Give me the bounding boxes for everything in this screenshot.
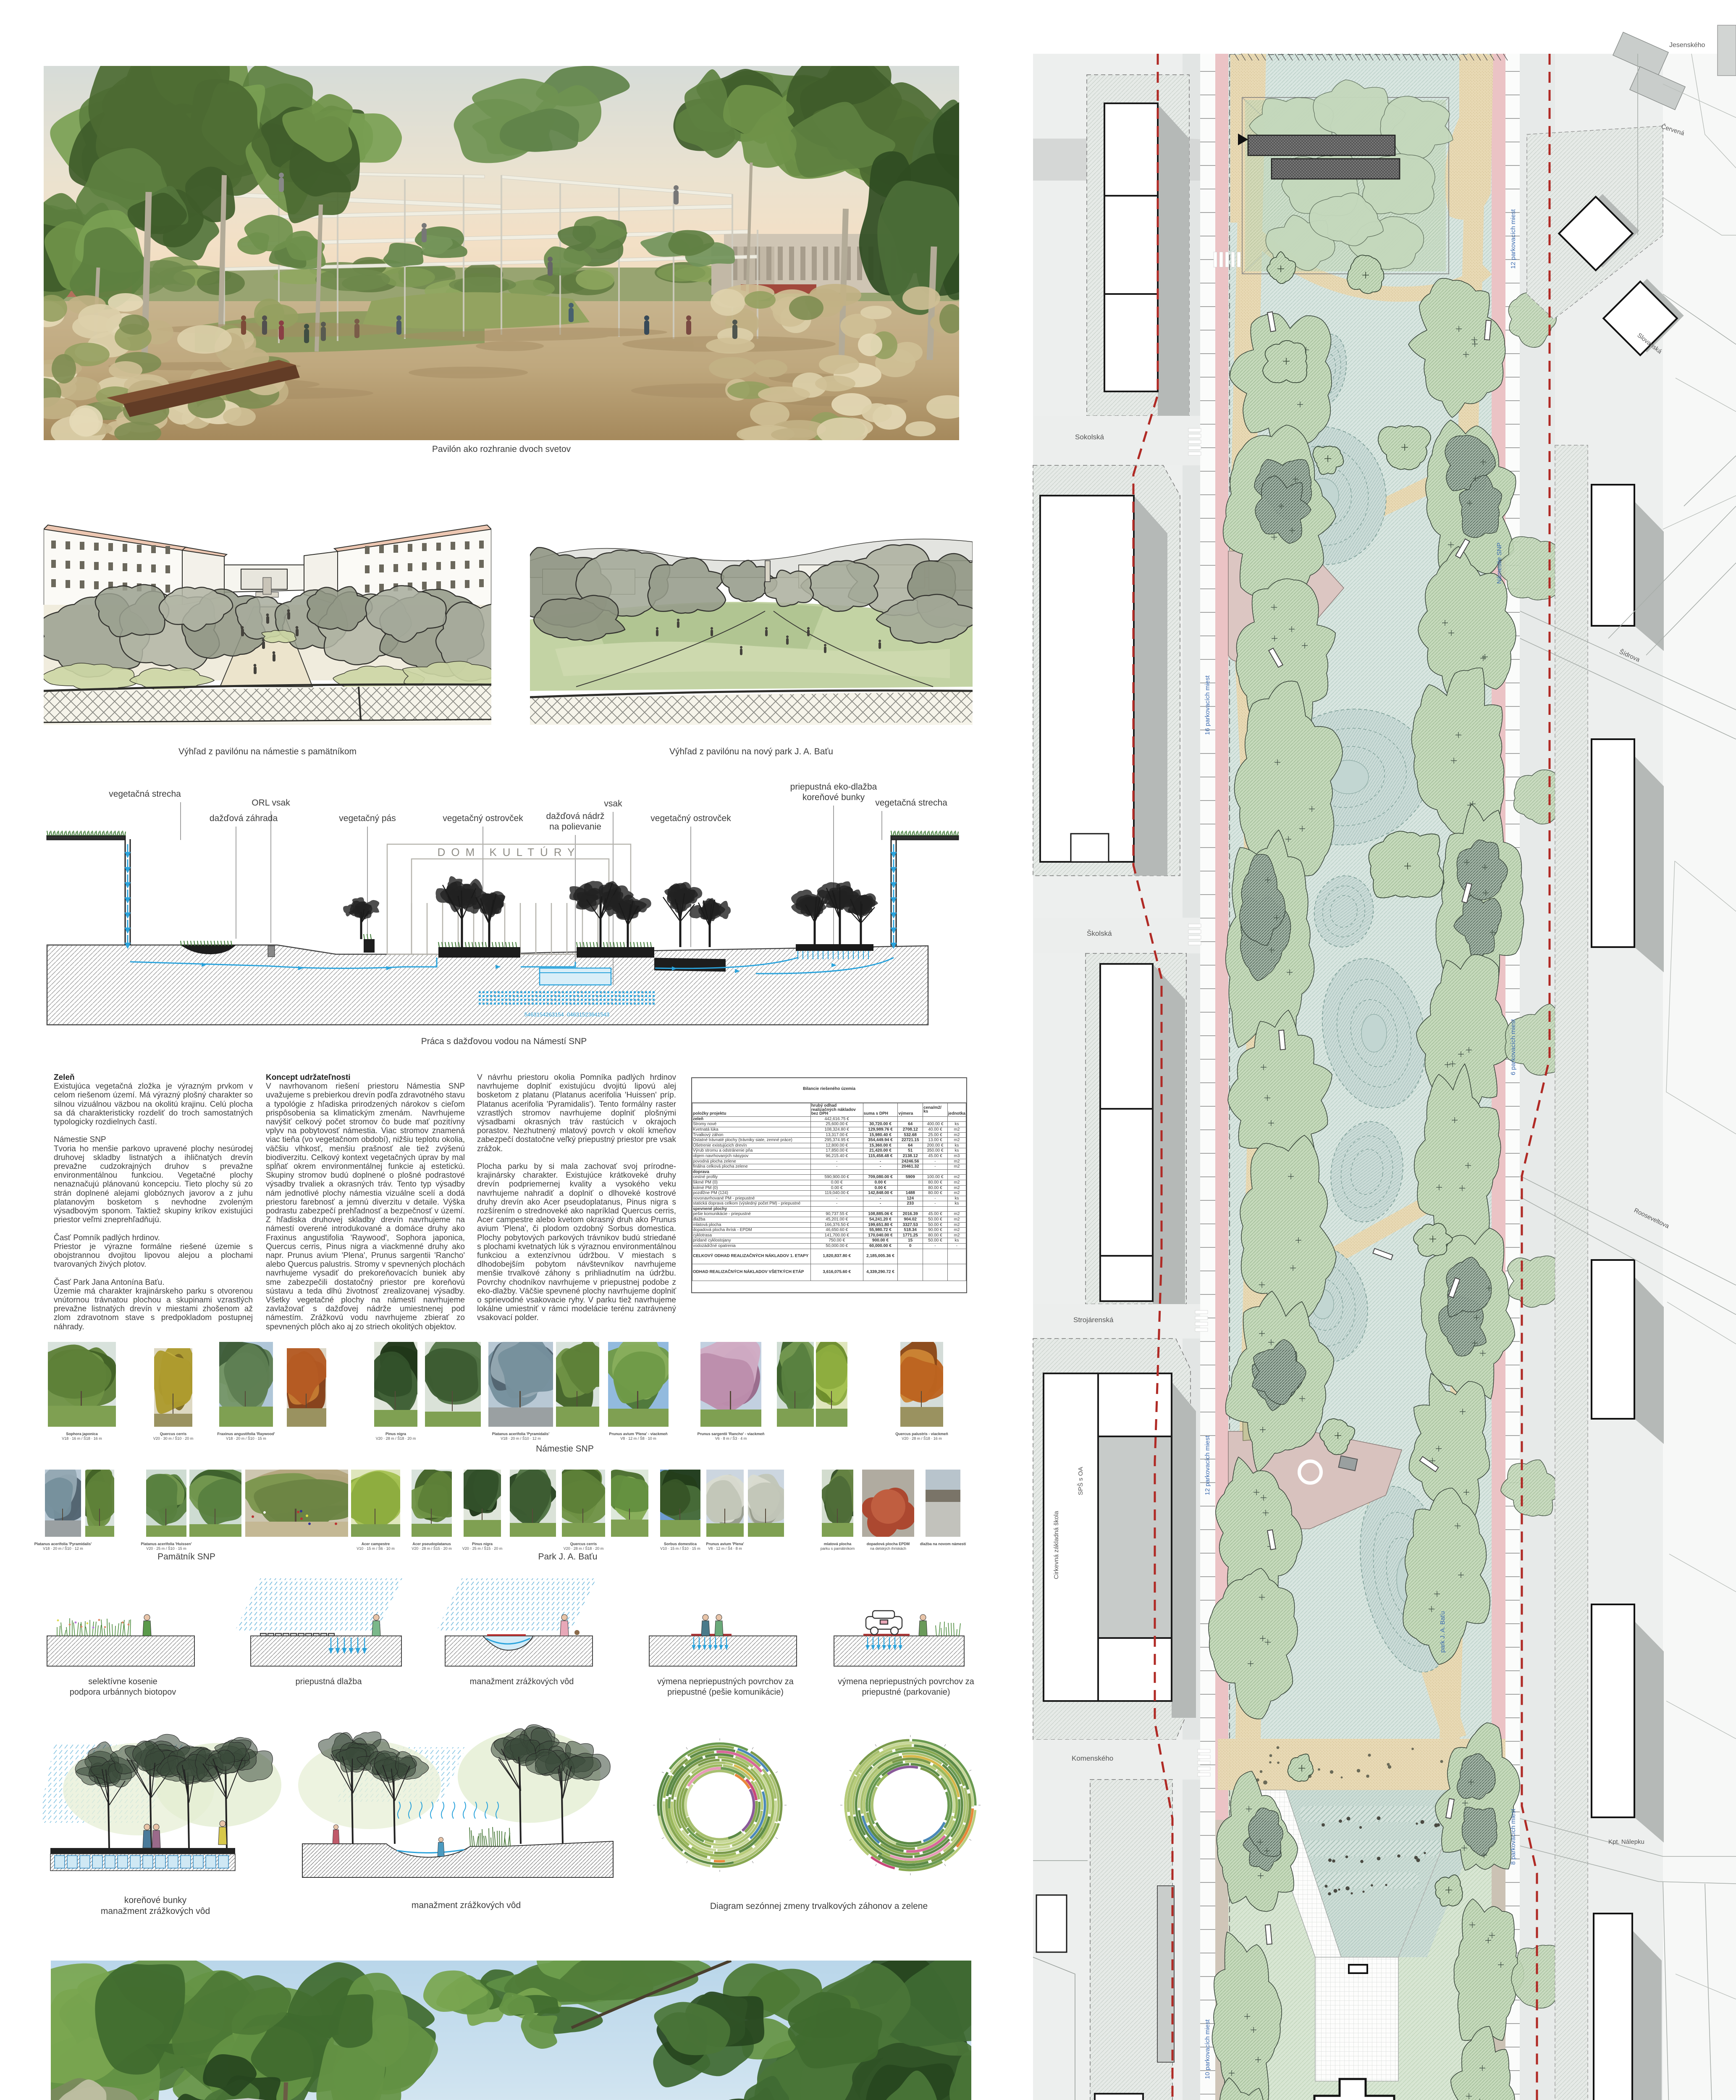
svg-text:Cirkevná základná škola: Cirkevná základná škola — [1053, 1511, 1060, 1579]
svg-text:park J. A. Baťu: park J. A. Baťu — [1439, 1611, 1446, 1653]
svg-text:8 parkovacích miest: 8 parkovacích miest — [1510, 1809, 1517, 1865]
svg-text:vegetačná strecha: vegetačná strecha — [875, 798, 947, 808]
svg-text:12 parkovacích miest: 12 parkovacích miest — [1510, 209, 1517, 269]
svg-text:vegetačný ostrovček: vegetačný ostrovček — [650, 814, 731, 823]
svg-text:Jesenského: Jesenského — [1669, 42, 1705, 49]
svg-text:ORL vsak: ORL vsak — [252, 798, 290, 808]
svg-text:vegetačný pás: vegetačný pás — [339, 814, 396, 823]
svg-text:10 parkovacích miest: 10 parkovacích miest — [1204, 2019, 1211, 2079]
svg-text:Komenského: Komenského — [1072, 1754, 1113, 1762]
svg-text:Námestie SNP: Námestie SNP — [1496, 543, 1503, 584]
svg-text:dažďová záhrada: dažďová záhrada — [210, 814, 278, 823]
svg-text:vegetačná strecha: vegetačná strecha — [109, 789, 181, 799]
svg-text:DOM KULTÚRY: DOM KULTÚRY — [438, 846, 581, 858]
svg-text:SPŠ s OA: SPŠ s OA — [1077, 1467, 1084, 1495]
svg-text:Školská: Školská — [1087, 929, 1112, 937]
svg-text:vsak: vsak — [604, 799, 622, 808]
svg-text:16 parkovacích miest: 16 parkovacích miest — [1204, 675, 1211, 735]
svg-text:12 parkovacích miest: 12 parkovacích miest — [1204, 1435, 1211, 1495]
svg-text:Sokolská: Sokolská — [1075, 433, 1104, 441]
svg-text:Strojárenská: Strojárenská — [1073, 1316, 1114, 1324]
svg-text:koreňové bunky: koreňové bunky — [802, 793, 865, 802]
svg-text:priepustná eko-dlažba: priepustná eko-dlažba — [790, 782, 877, 792]
svg-text:Kpt. Nálepku: Kpt. Nálepku — [1608, 1838, 1644, 1845]
svg-text:na polievanie: na polievanie — [549, 822, 601, 832]
svg-text:5463154263154 04631523641543: 5463154263154 04631523641543 — [524, 1011, 609, 1018]
svg-text:dažďová nádrž: dažďová nádrž — [546, 811, 605, 821]
svg-text:vegetačný ostrovček: vegetačný ostrovček — [443, 814, 523, 823]
svg-text:6 parkovacích miest: 6 parkovacích miest — [1510, 1019, 1517, 1075]
